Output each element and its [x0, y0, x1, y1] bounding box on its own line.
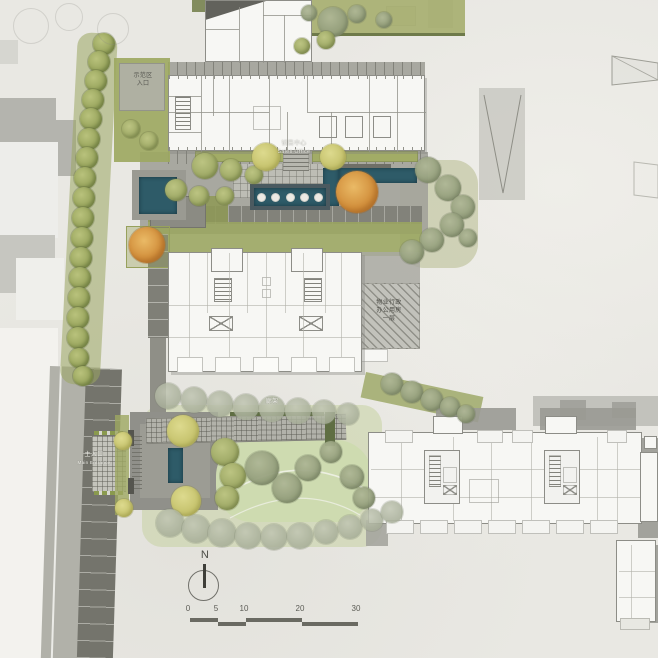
- annex-label: 示范区 入口: [122, 73, 164, 89]
- stair: [175, 96, 191, 130]
- stepping-disc: [286, 193, 295, 202]
- outline-tree: [55, 3, 83, 31]
- scale-tick-10: 10: [240, 604, 249, 613]
- balcony: [556, 520, 584, 534]
- stair: [549, 455, 561, 487]
- stepping-disc: [257, 193, 266, 202]
- stair: [429, 455, 441, 487]
- scale-segment: [218, 622, 246, 626]
- hedge-line: [325, 412, 335, 446]
- page: { "title": "住宅景观总平面图", "labels": { "sale…: [0, 0, 658, 658]
- gate-post: [128, 478, 134, 494]
- outline-ramp-east: [634, 162, 658, 198]
- unit-cluster: [469, 479, 499, 503]
- site-edge-hedge: [60, 32, 118, 386]
- garden-path: [150, 338, 166, 418]
- sales-office-label-cn: 销售中心: [261, 141, 327, 149]
- building-mid-residential: [168, 252, 362, 372]
- main-entrance-en: Main Entrance: [68, 460, 120, 466]
- scale-tick-20: 20: [296, 604, 305, 613]
- property-office-line3: 一层: [364, 316, 414, 324]
- property-office-line2: 办公用房: [364, 308, 414, 316]
- balcony: [477, 430, 503, 443]
- main-entrance-cn: 主入口: [68, 452, 120, 460]
- hedge-line: [230, 412, 324, 416]
- stair-tower: [433, 416, 463, 434]
- balcony: [607, 430, 627, 443]
- elevator: [563, 467, 577, 483]
- tree-planter: [126, 226, 170, 268]
- balcony: [488, 520, 516, 534]
- scale-tick-5: 5: [214, 604, 218, 613]
- balcony: [522, 520, 550, 534]
- pergola-label: 廊架: [255, 399, 289, 407]
- context-building: [16, 258, 64, 320]
- sales-office-label: 销售中心 Sales Office: [261, 141, 327, 155]
- corner-unit: [616, 540, 656, 622]
- entrance-pool: [168, 448, 183, 483]
- stair-tower: [545, 416, 577, 434]
- pergola-walkway: [146, 414, 347, 444]
- building-sales-center: [168, 75, 425, 151]
- balcony: [291, 357, 317, 373]
- forecourt-planter: [312, 151, 418, 162]
- east-pool-horizontal: [339, 168, 417, 183]
- property-office-line1: 物业行政: [364, 300, 414, 308]
- balcony: [590, 520, 618, 534]
- building-sales-center-wing: [205, 0, 312, 62]
- north-garden-hedge: [305, 33, 465, 36]
- context-building: [0, 40, 18, 64]
- stepping-disc: [314, 193, 323, 202]
- balcony: [253, 357, 279, 373]
- shaft: [563, 485, 577, 495]
- fountain-stepping-discs: [257, 192, 323, 202]
- balcony: [329, 357, 355, 373]
- scale-tick-30: 30: [352, 604, 361, 613]
- lower-building-step: [640, 452, 658, 522]
- gate-post: [128, 430, 134, 446]
- north-needle: [203, 564, 206, 588]
- shaft: [443, 485, 457, 495]
- balcony: [454, 520, 482, 534]
- sales-office-label-en: Sales Office: [261, 149, 327, 156]
- north-arrow: N: [180, 548, 230, 604]
- balcony: [215, 357, 241, 373]
- site-plan-canvas: 销售中心 Sales Office 物业行政 办公用房 一层 主入口 Main …: [0, 0, 658, 658]
- corner-unit-balcony: [620, 618, 650, 630]
- scale-segment: [246, 618, 302, 622]
- stair-tower: [291, 248, 323, 272]
- annex-label-line1: 示范区: [122, 73, 164, 81]
- context-building: [0, 142, 58, 238]
- north-garden: [305, 0, 465, 36]
- annex-label-line2: 入口: [122, 81, 164, 89]
- property-office-label: 物业行政 办公用房 一层: [364, 300, 414, 323]
- balcony: [385, 430, 413, 443]
- outline-ramp-north-diag: [612, 56, 658, 80]
- stair: [304, 278, 322, 302]
- balcony: [386, 520, 414, 534]
- lawn: [216, 440, 372, 522]
- scale-segment: [302, 622, 358, 626]
- scale-segment: [190, 618, 218, 622]
- unit-core: [544, 450, 580, 504]
- scale-tick-0: 0: [186, 604, 190, 613]
- room: [253, 106, 281, 130]
- outline-ramp-north: [612, 56, 658, 85]
- balcony: [177, 357, 203, 373]
- balcony: [512, 430, 533, 443]
- elevator: [443, 467, 457, 483]
- room: [319, 116, 337, 138]
- garage-ramp: [479, 88, 525, 200]
- outline-tree: [13, 8, 49, 44]
- unit-core: [424, 450, 460, 504]
- balcony: [420, 520, 448, 534]
- window-ticks: [169, 76, 424, 79]
- sales-terrace: [168, 62, 425, 75]
- annex-porch: [358, 349, 388, 362]
- room: [373, 116, 391, 138]
- building-lower-residential: [368, 432, 642, 524]
- roof-shadow: [206, 1, 286, 23]
- stepping-disc: [300, 193, 309, 202]
- north-label: N: [198, 548, 212, 562]
- main-entrance-label: 主入口 Main Entrance: [68, 452, 120, 466]
- room: [345, 116, 363, 138]
- stair-tower: [211, 248, 243, 272]
- stepping-disc: [271, 193, 280, 202]
- west-pool: [139, 177, 177, 214]
- legend-box: [644, 436, 657, 449]
- scale-bar: 0 5 10 20 30: [180, 602, 370, 630]
